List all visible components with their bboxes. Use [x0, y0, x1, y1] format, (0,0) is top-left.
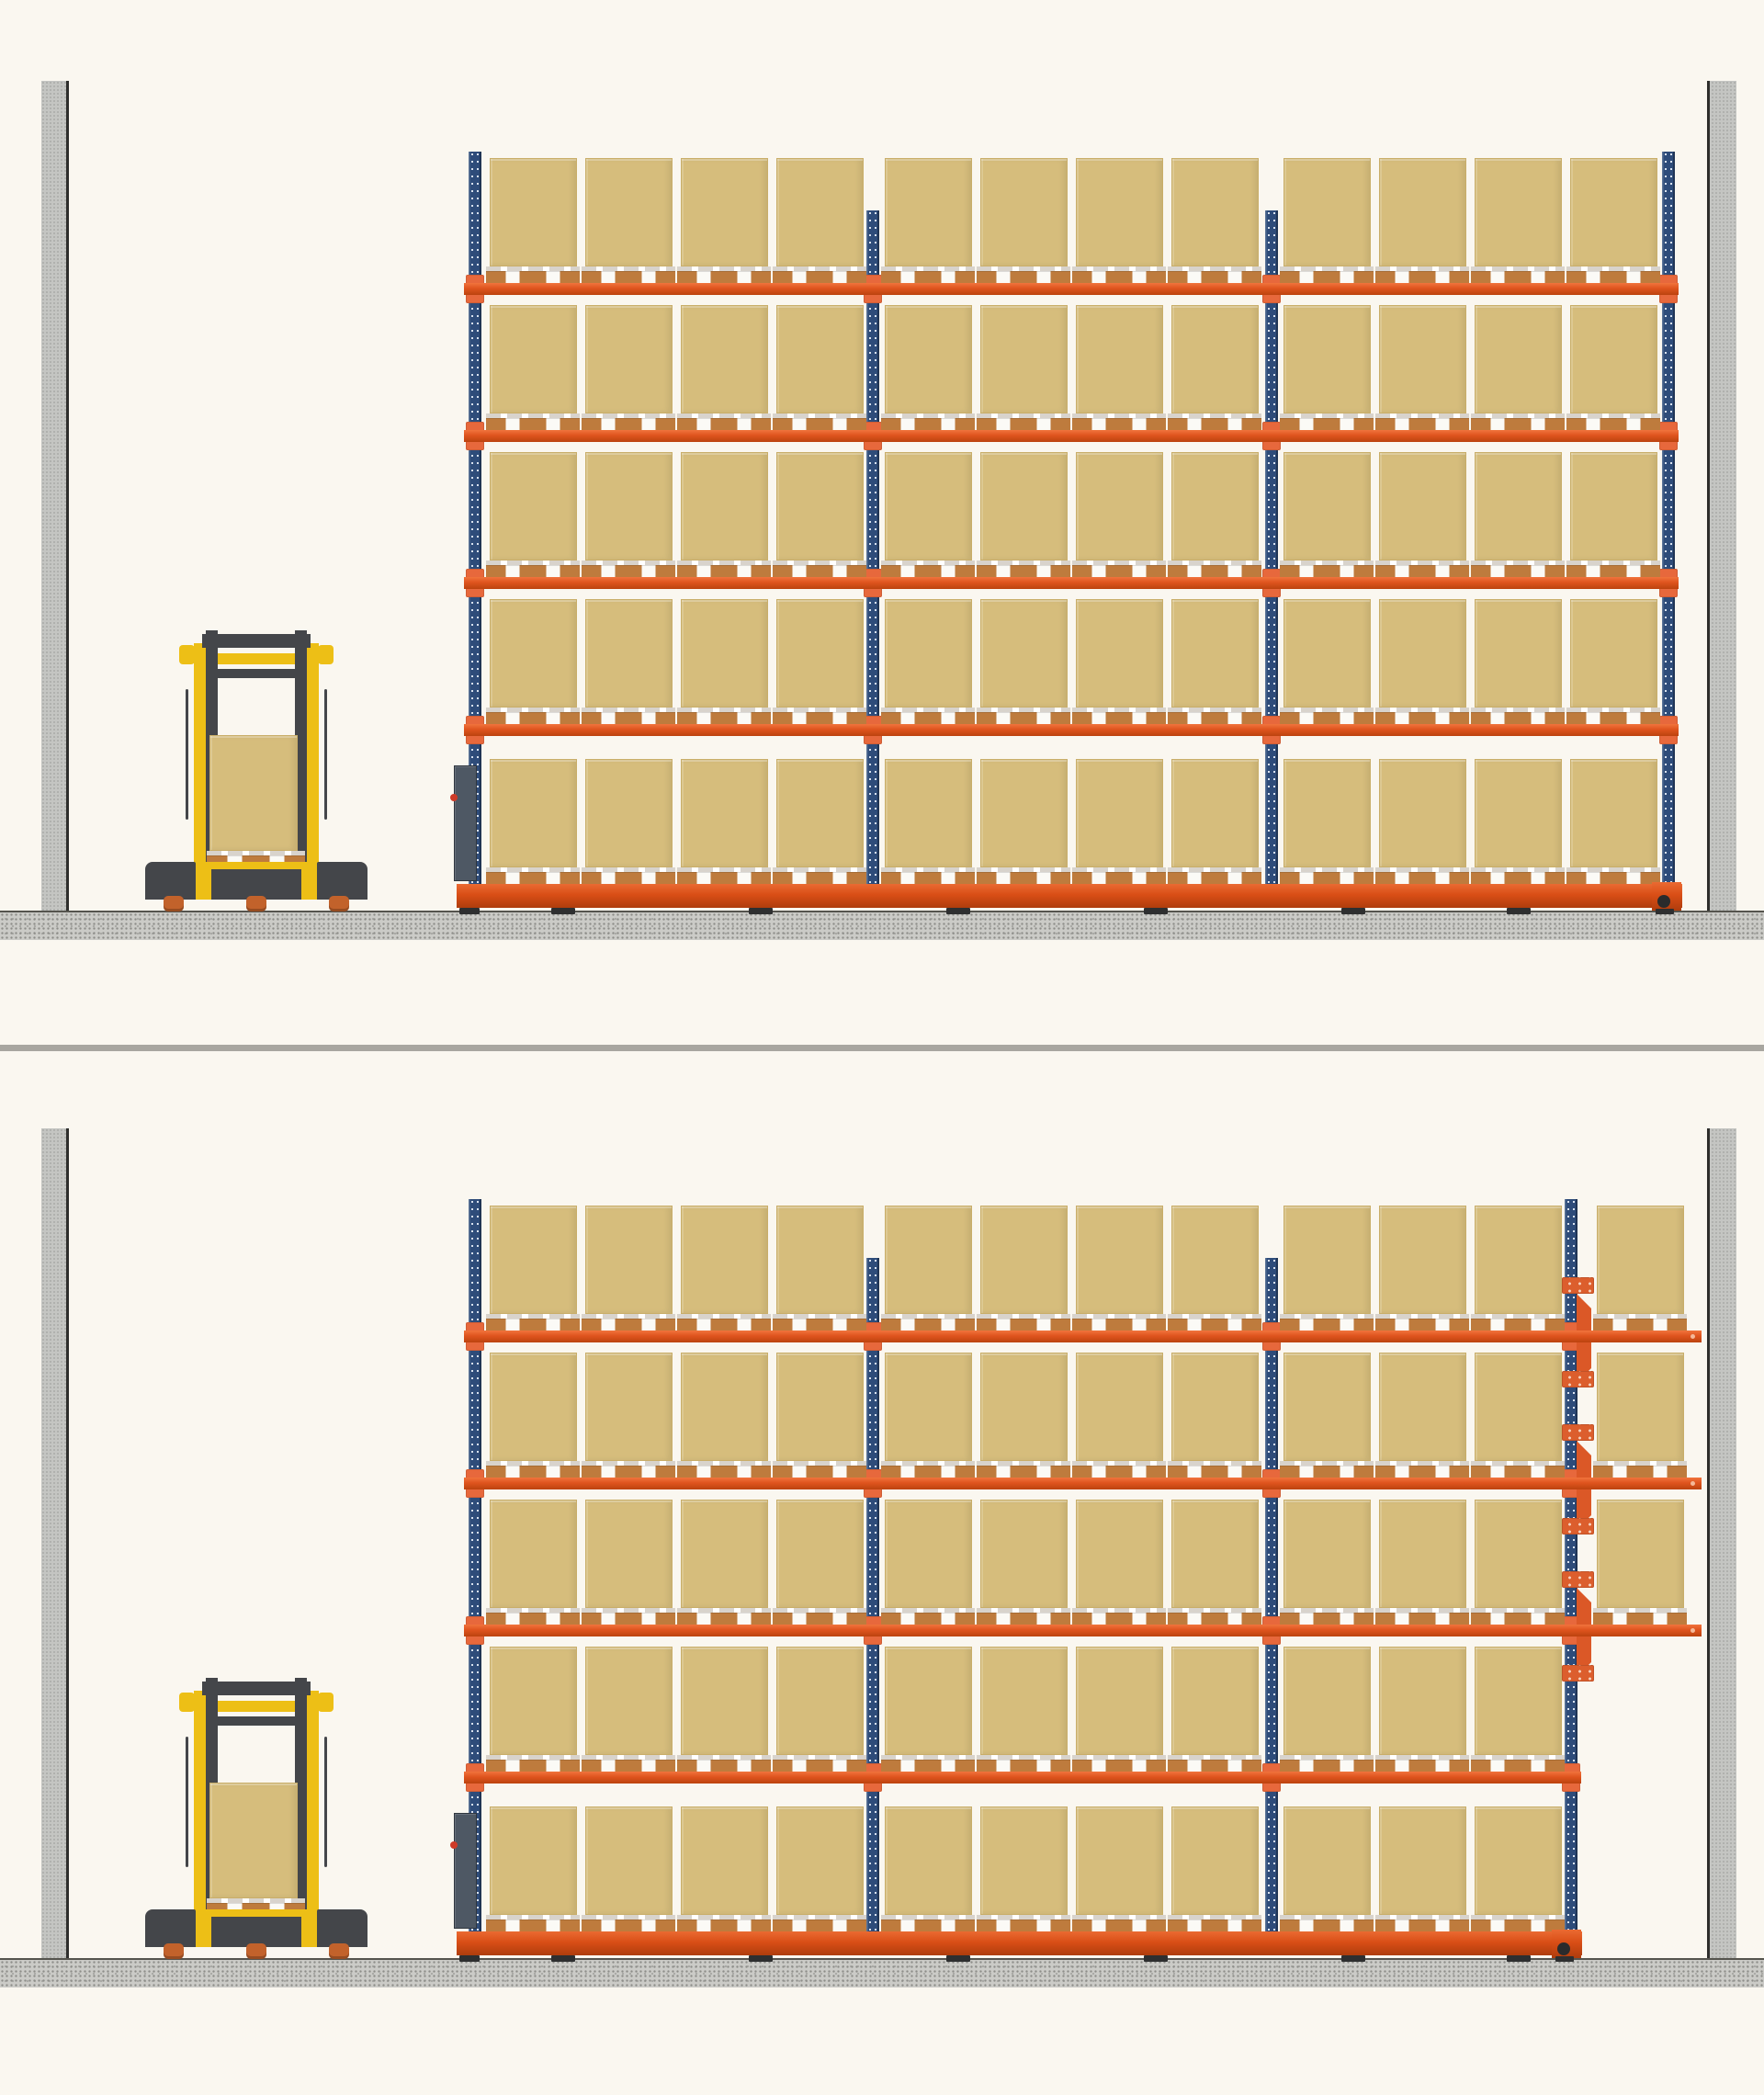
pallet: [977, 1915, 1070, 1931]
pallet-box: [1570, 599, 1657, 708]
pallet: [582, 1314, 675, 1331]
pallet-box: [885, 1806, 972, 1915]
pallet-blocks: [977, 1319, 1070, 1331]
pallet: [677, 1461, 771, 1478]
pallet-box: [681, 1806, 768, 1915]
pallet-blocks: [1168, 1319, 1261, 1331]
pallet-box: [1379, 305, 1466, 413]
pallet-box: [1475, 759, 1562, 867]
pallet-box: [776, 759, 864, 867]
pallet-box: [1570, 759, 1657, 867]
pallet-box: [1283, 1647, 1371, 1755]
pallet: [677, 266, 771, 283]
pallet: [1471, 561, 1565, 577]
forklift: [145, 630, 367, 912]
pallet: [1168, 561, 1261, 577]
pallet-blocks: [881, 1466, 975, 1478]
pallet-blocks: [1168, 712, 1261, 724]
cantilever-arm-tip: [1690, 1481, 1695, 1486]
base-foot: [551, 1955, 575, 1962]
pallet: [1375, 1461, 1469, 1478]
rack-beam: [464, 430, 1679, 442]
pallet-box: [1475, 452, 1562, 561]
pallet: [1280, 561, 1374, 577]
pallet-blocks: [1375, 1319, 1469, 1331]
pallet-blocks: [486, 1466, 580, 1478]
pallet: [1471, 413, 1565, 430]
pallet-blocks: [977, 1466, 1070, 1478]
pallet: [677, 1915, 771, 1931]
pallet-box: [490, 452, 577, 561]
pallet-blocks: [1375, 1760, 1469, 1772]
cantilever-bracket-plate: [1562, 1665, 1594, 1682]
pallet-box: [1283, 759, 1371, 867]
rack-upright: [866, 1258, 879, 1939]
pallet-box: [585, 1500, 673, 1608]
base-foot: [1341, 908, 1365, 914]
pallet-box: [885, 1206, 972, 1314]
rack-beam: [464, 577, 1679, 589]
pallet-blocks: [1280, 1919, 1374, 1931]
pallet-box: [1379, 1647, 1466, 1755]
pallet-blocks: [773, 1760, 866, 1772]
pallet-box: [1171, 1647, 1259, 1755]
wall-edge-line: [1707, 81, 1710, 912]
pallet-blocks: [977, 872, 1070, 884]
pallet-box: [1379, 759, 1466, 867]
pallet-box: [1475, 1500, 1562, 1608]
forklift-mast-rail: [307, 643, 319, 866]
pallet-box: [1076, 1206, 1163, 1314]
pallet: [1280, 708, 1374, 724]
pallet-box: [585, 1806, 673, 1915]
pallet-blocks: [881, 271, 975, 283]
pallet-blocks: [1593, 1466, 1687, 1478]
pallet-box: [776, 1806, 864, 1915]
pallet-box: [585, 1647, 673, 1755]
pallet-box: [1076, 158, 1163, 266]
forklift-wheel: [329, 896, 349, 912]
pallet: [977, 708, 1070, 724]
pallet-box: [885, 305, 972, 413]
pallet-blocks: [1168, 565, 1261, 577]
forklift-hose: [186, 1737, 188, 1867]
pallet-box: [1076, 759, 1163, 867]
pallet-blocks: [773, 271, 866, 283]
pallet-blocks: [1168, 1919, 1261, 1931]
base-ground-pad: [1656, 909, 1674, 914]
pallet-blocks: [1471, 872, 1565, 884]
pallet-blocks: [1072, 872, 1166, 884]
pallet-box: [1283, 305, 1371, 413]
pallet-box: [490, 759, 577, 867]
panel-wall-cantilever-layout: [0, 1047, 1764, 2095]
base-end-wheel: [1557, 1942, 1570, 1955]
forklift-mast-cap: [318, 645, 334, 664]
pallet-blocks: [1566, 565, 1660, 577]
pallet-box: [980, 1647, 1068, 1755]
rack-upright: [1662, 152, 1675, 891]
pallet-box: [980, 452, 1068, 561]
forklift-mast-cap: [318, 1693, 334, 1712]
pallet-blocks: [1280, 712, 1374, 724]
pallet: [486, 413, 580, 430]
pallet: [677, 1755, 771, 1772]
pallet-box: [681, 452, 768, 561]
pallet-blocks: [582, 1466, 675, 1478]
pallet-blocks: [1280, 271, 1374, 283]
forklift-load-box: [209, 1783, 298, 1898]
pallet-blocks: [677, 1319, 771, 1331]
cabinet-button: [450, 1841, 458, 1849]
pallet: [1072, 561, 1166, 577]
pallet-blocks: [1471, 1613, 1565, 1625]
pallet: [1471, 266, 1565, 283]
pallet: [977, 413, 1070, 430]
pallet: [773, 1608, 866, 1625]
pallet-box: [1076, 1353, 1163, 1461]
pallet: [677, 413, 771, 430]
pallet-box: [776, 452, 864, 561]
pallet-box: [980, 599, 1068, 708]
pallet-blocks: [1168, 271, 1261, 283]
rack-beam: [464, 1625, 1581, 1636]
pallet-box: [681, 158, 768, 266]
pallet-box: [585, 599, 673, 708]
pallet-box: [1283, 158, 1371, 266]
pallet: [1168, 266, 1261, 283]
forklift-crossbar: [218, 1716, 295, 1726]
pallet: [486, 561, 580, 577]
forklift-wheel: [246, 896, 266, 912]
pallet-blocks: [486, 565, 580, 577]
pallet-box: [1283, 1206, 1371, 1314]
pallet: [486, 1461, 580, 1478]
pallet: [977, 1314, 1070, 1331]
pallet: [881, 867, 975, 884]
wall-edge-line: [1707, 1128, 1710, 1960]
pallet: [582, 867, 675, 884]
pallet: [1072, 1608, 1166, 1625]
warehouse-illustration: [0, 0, 1764, 2095]
pallet: [1280, 1608, 1374, 1625]
pallet: [1280, 1915, 1374, 1931]
pallet-blocks: [1280, 1319, 1374, 1331]
pallet-blocks: [1593, 1613, 1687, 1625]
pallet-box: [1171, 1806, 1259, 1915]
base-end-wheel: [1657, 895, 1670, 908]
pallet: [486, 266, 580, 283]
pallet-blocks: [1072, 1319, 1166, 1331]
forklift-mast-rail: [194, 643, 206, 866]
pallet-box: [681, 1353, 768, 1461]
pallet-blocks: [881, 712, 975, 724]
pallet-box: [1076, 452, 1163, 561]
pallet-blocks: [1471, 271, 1565, 283]
base-foot: [1341, 1955, 1365, 1962]
pallet-blocks: [677, 1613, 771, 1625]
pallet: [1280, 1314, 1374, 1331]
pallet: [881, 413, 975, 430]
pallet: [582, 1915, 675, 1931]
pallet-blocks: [1280, 418, 1374, 430]
pallet-blocks: [1072, 1466, 1166, 1478]
pallet: [773, 1755, 866, 1772]
pallet: [1072, 1314, 1166, 1331]
pallet: [1471, 1608, 1565, 1625]
pallet-box: [490, 1806, 577, 1915]
pallet-box: [1475, 1206, 1562, 1314]
pallet-box: [980, 759, 1068, 867]
pallet: [1168, 1608, 1261, 1625]
pallet-blocks: [1168, 1760, 1261, 1772]
pallet-blocks: [582, 1613, 675, 1625]
pallet-box: [1076, 599, 1163, 708]
rack-beam: [464, 283, 1679, 295]
rack-upright: [866, 210, 879, 891]
pallet: [1471, 1755, 1565, 1772]
pallet-box: [1283, 1500, 1371, 1608]
cantilever-arm: [1577, 1478, 1702, 1489]
pallet-blocks: [1280, 872, 1374, 884]
pallet-box: [681, 305, 768, 413]
pallet: [1072, 1461, 1166, 1478]
pallet-blocks: [1280, 1760, 1374, 1772]
pallet-blocks: [1280, 565, 1374, 577]
pallet-box: [885, 759, 972, 867]
pallet-box: [1475, 1806, 1562, 1915]
pallet-box: [681, 599, 768, 708]
pallet: [1375, 1608, 1469, 1625]
pallet-box: [681, 759, 768, 867]
pallet: [677, 708, 771, 724]
pallet-box: [1171, 1206, 1259, 1314]
pallet-blocks: [977, 712, 1070, 724]
pallet-blocks: [1471, 1319, 1565, 1331]
forklift-wheel: [246, 1943, 266, 1959]
pallet: [582, 561, 675, 577]
forklift-outrigger: [317, 862, 367, 900]
forklift-mast-rail: [307, 1691, 319, 1914]
pallet-blocks: [486, 872, 580, 884]
pallet: [582, 1755, 675, 1772]
pallet-blocks: [582, 712, 675, 724]
forklift-crossbar: [218, 653, 295, 664]
pallet-blocks: [582, 565, 675, 577]
pallet: [1471, 867, 1565, 884]
pallet: [881, 1314, 975, 1331]
rack-base: [457, 1931, 1582, 1955]
pallet: [486, 708, 580, 724]
pallet: [977, 561, 1070, 577]
pallet-box: [585, 305, 673, 413]
power-cabinet: [454, 765, 477, 881]
pallet-blocks: [1168, 1613, 1261, 1625]
pallet-blocks: [1280, 1466, 1374, 1478]
pallet-box: [1283, 1353, 1371, 1461]
pallet: [881, 266, 975, 283]
warehouse-wall-left: [41, 1128, 69, 1960]
pallet-blocks: [1168, 1466, 1261, 1478]
rack-upright: [1565, 1199, 1577, 1939]
base-foot: [551, 908, 575, 914]
pallet: [1072, 1755, 1166, 1772]
pallet-blocks: [1280, 1613, 1374, 1625]
pallet-blocks: [582, 271, 675, 283]
pallet-box: [776, 1500, 864, 1608]
pallet-box: [1379, 1206, 1466, 1314]
rack-beam: [464, 1478, 1581, 1489]
pallet-box: [885, 158, 972, 266]
pallet: [1168, 1755, 1261, 1772]
pallet: [773, 1314, 866, 1331]
forklift-crossbar: [218, 1701, 295, 1712]
pallet: [1375, 561, 1469, 577]
pallet: [1168, 708, 1261, 724]
pallet-box: [1597, 1500, 1684, 1608]
pallet-blocks: [881, 565, 975, 577]
pallet-box: [885, 1500, 972, 1608]
pallet-box: [980, 1500, 1068, 1608]
pallet-box: [1597, 1206, 1684, 1314]
pallet-blocks: [1375, 565, 1469, 577]
pallet: [773, 867, 866, 884]
pallet: [1168, 413, 1261, 430]
pallet-blocks: [1471, 565, 1565, 577]
pallet: [1072, 1915, 1166, 1931]
pallet-box: [1475, 1353, 1562, 1461]
forklift-crossbar: [218, 669, 295, 678]
pallet-blocks: [486, 418, 580, 430]
base-foot: [946, 908, 970, 914]
pallet-blocks: [582, 1319, 675, 1331]
pallet-box: [980, 158, 1068, 266]
pallet: [773, 1915, 866, 1931]
rack-base: [457, 884, 1682, 908]
pallet: [486, 867, 580, 884]
pallet-box: [681, 1500, 768, 1608]
cantilever-arm: [1577, 1625, 1702, 1636]
base-foot: [749, 1955, 773, 1962]
pallet: [486, 1755, 580, 1772]
pallet-blocks: [773, 565, 866, 577]
pallet-blocks: [1471, 1760, 1565, 1772]
pallet: [1280, 266, 1374, 283]
pallet: [1566, 266, 1660, 283]
pallet-blocks: [1471, 712, 1565, 724]
pallet-blocks: [1072, 1613, 1166, 1625]
pallet-box: [1283, 452, 1371, 561]
pallet-blocks: [677, 1466, 771, 1478]
pallet-blocks: [677, 712, 771, 724]
forklift-outrigger: [317, 1909, 367, 1947]
pallet: [977, 266, 1070, 283]
cantilever-arm-tip: [1690, 1628, 1695, 1633]
pallet-blocks: [1375, 271, 1469, 283]
pallet-blocks: [486, 271, 580, 283]
pallet-box: [980, 305, 1068, 413]
pallet: [582, 1461, 675, 1478]
pallet: [1566, 867, 1660, 884]
pallet: [881, 1608, 975, 1625]
forklift: [145, 1678, 367, 1959]
pallet-blocks: [773, 712, 866, 724]
pallet-blocks: [1566, 418, 1660, 430]
rack-beam: [464, 1331, 1581, 1342]
pallet-blocks: [1566, 872, 1660, 884]
pallet-blocks: [881, 872, 975, 884]
pallet: [1593, 1608, 1687, 1625]
pallet-blocks: [1375, 712, 1469, 724]
pallet: [773, 266, 866, 283]
pallet-box: [1570, 158, 1657, 266]
forklift-mast-cap: [179, 1693, 195, 1712]
forklift-outrigger: [145, 862, 196, 900]
forklift-hose: [324, 1737, 327, 1867]
pallet: [977, 1755, 1070, 1772]
pallet-box: [776, 1353, 864, 1461]
pallet: [881, 1461, 975, 1478]
pallet-blocks: [977, 1919, 1070, 1931]
pallet-blocks: [1168, 418, 1261, 430]
pallet-blocks: [881, 1613, 975, 1625]
pallet-box: [490, 158, 577, 266]
pallet: [1593, 1314, 1687, 1331]
pallet: [582, 266, 675, 283]
pallet: [486, 1608, 580, 1625]
pallet-box: [1475, 158, 1562, 266]
pallet-box: [980, 1353, 1068, 1461]
pallet: [1168, 867, 1261, 884]
pallet-blocks: [773, 1319, 866, 1331]
pallet: [1375, 413, 1469, 430]
pallet-blocks: [582, 418, 675, 430]
cabinet-button: [450, 794, 458, 801]
floor: [0, 912, 1764, 940]
pallet: [1471, 1314, 1565, 1331]
pallet-blocks: [582, 872, 675, 884]
pallet-blocks: [677, 1760, 771, 1772]
base-foot: [749, 908, 773, 914]
pallet-blocks: [677, 1919, 771, 1931]
pallet-blocks: [582, 1760, 675, 1772]
pallet-box: [1570, 452, 1657, 561]
pallet-blocks: [1471, 418, 1565, 430]
pallet: [1280, 867, 1374, 884]
floor: [0, 1960, 1764, 1987]
forklift-wheel: [329, 1943, 349, 1959]
pallet-box: [1283, 1806, 1371, 1915]
pallet: [1168, 1915, 1261, 1931]
pallet: [1375, 1314, 1469, 1331]
base-foot: [1144, 908, 1168, 914]
warehouse-wall-right: [1707, 1128, 1736, 1960]
pallet-box: [1379, 452, 1466, 561]
pallet: [1566, 708, 1660, 724]
pallet-box: [1076, 1500, 1163, 1608]
pallet: [881, 1755, 975, 1772]
pallet: [1375, 1755, 1469, 1772]
pallet: [1375, 867, 1469, 884]
base-foot: [459, 1955, 480, 1962]
rack-beam: [464, 724, 1679, 736]
pallet-box: [1475, 305, 1562, 413]
rack-beam: [464, 1772, 1581, 1784]
power-cabinet: [454, 1813, 477, 1929]
pallet-blocks: [1566, 712, 1660, 724]
pallet-box: [1171, 158, 1259, 266]
pallet-blocks: [1375, 1613, 1469, 1625]
